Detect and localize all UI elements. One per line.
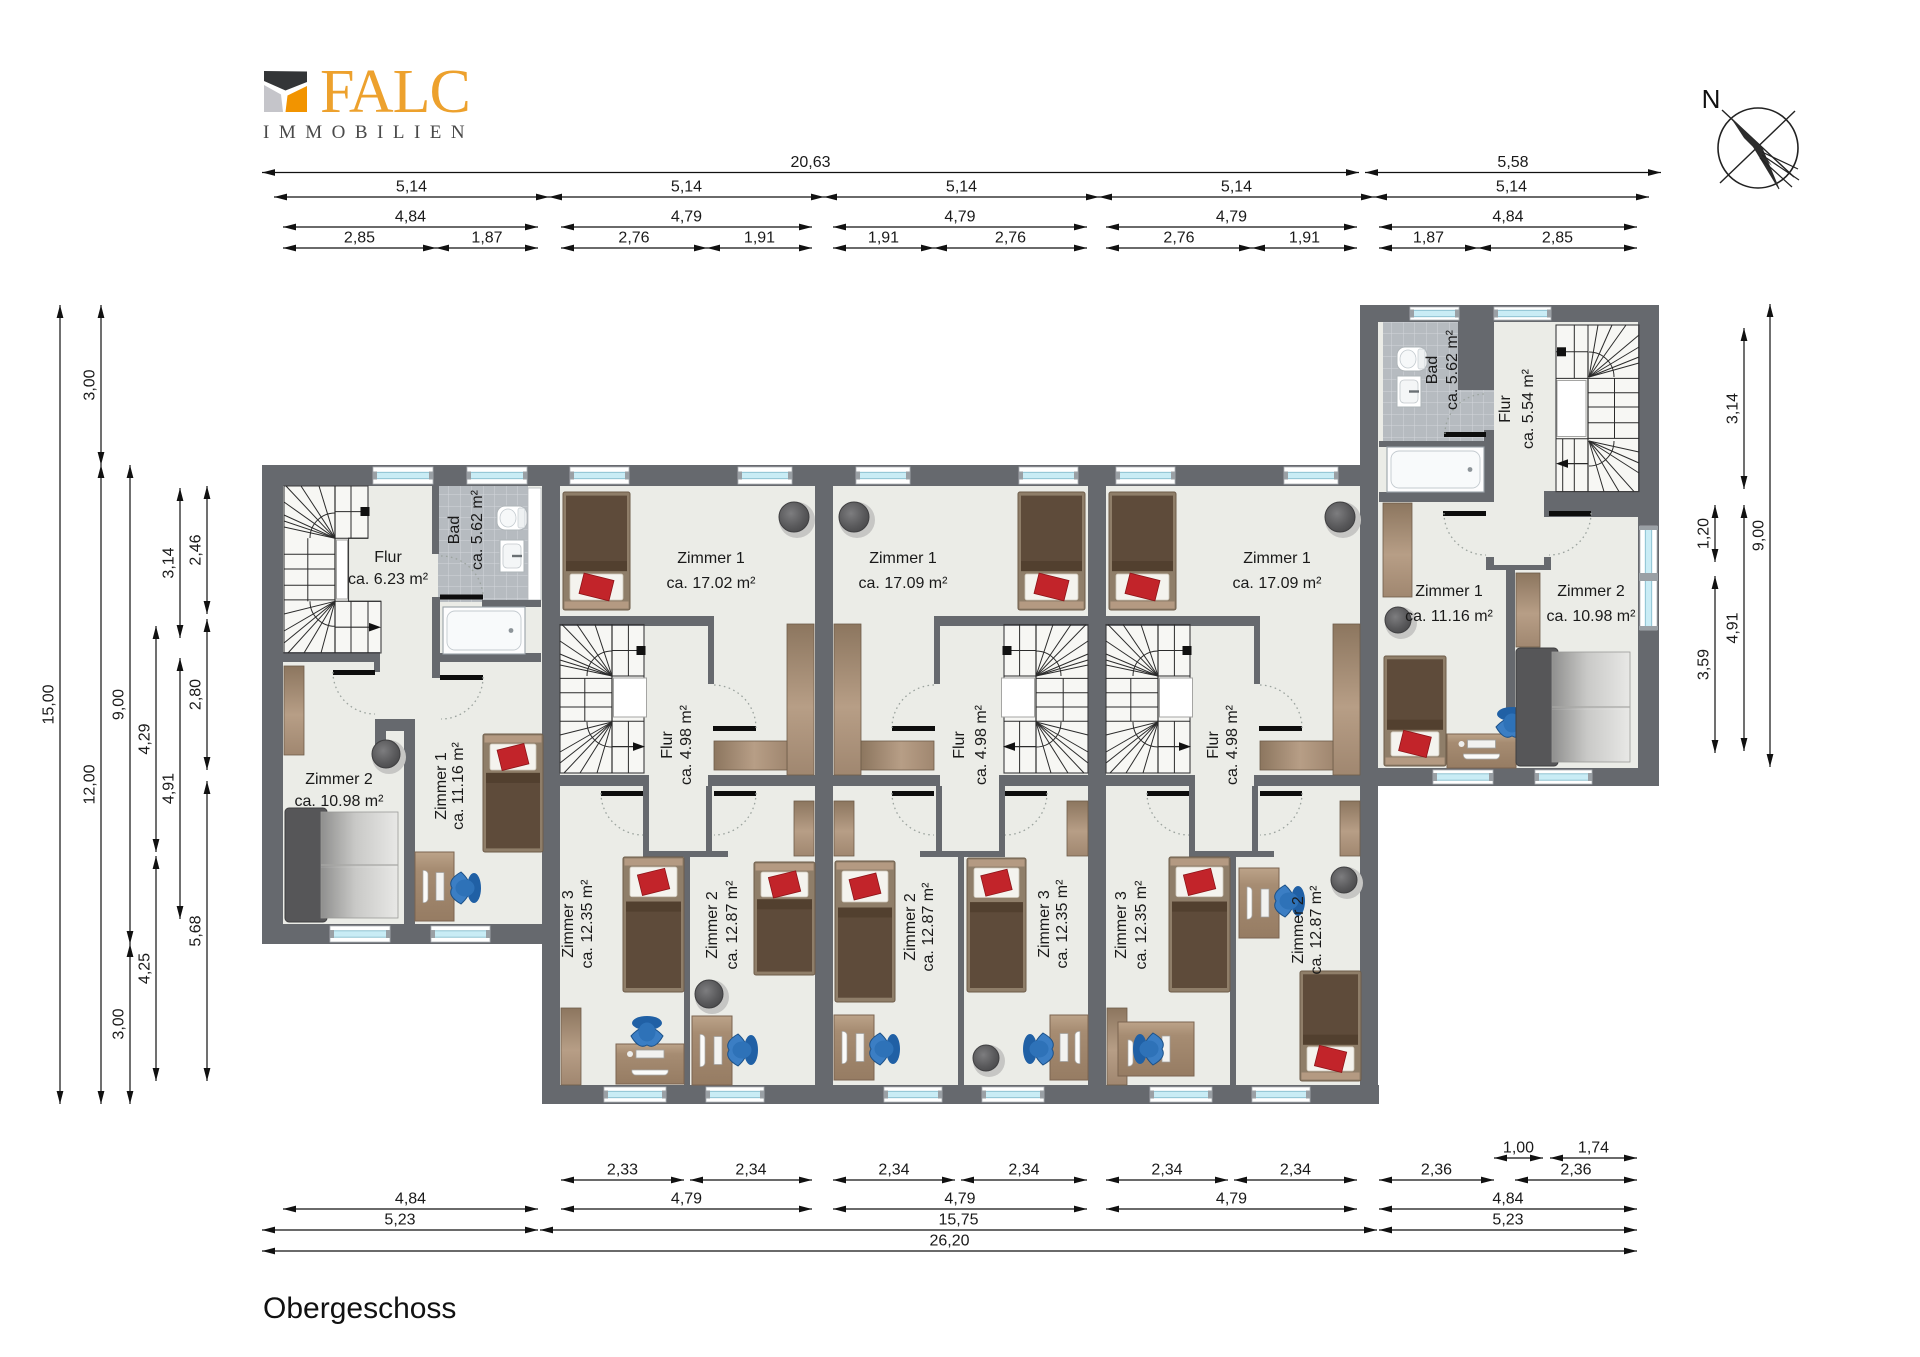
svg-text:ca. 12.87 m²: ca. 12.87 m² <box>920 882 937 972</box>
svg-text:2,34: 2,34 <box>1280 1162 1311 1179</box>
svg-text:2,36: 2,36 <box>1560 1162 1591 1179</box>
svg-text:5,14: 5,14 <box>946 179 977 196</box>
svg-text:2,33: 2,33 <box>607 1162 638 1179</box>
svg-text:Flur: Flur <box>374 549 402 566</box>
svg-text:ca. 12.87 m²: ca. 12.87 m² <box>1308 885 1325 975</box>
svg-text:2,34: 2,34 <box>1151 1162 1182 1179</box>
svg-text:4,84: 4,84 <box>1492 1191 1523 1208</box>
svg-text:Flur: Flur <box>951 731 968 759</box>
svg-text:5,14: 5,14 <box>1496 179 1527 196</box>
svg-text:5,14: 5,14 <box>1221 179 1252 196</box>
svg-text:20,63: 20,63 <box>790 154 830 171</box>
svg-text:2,34: 2,34 <box>878 1162 909 1179</box>
svg-text:5,14: 5,14 <box>671 179 702 196</box>
svg-text:4,91: 4,91 <box>1725 612 1742 643</box>
svg-text:Zimmer 2: Zimmer 2 <box>704 891 721 959</box>
svg-text:4,79: 4,79 <box>944 1191 975 1208</box>
svg-text:ca. 5.54 m²: ca. 5.54 m² <box>1520 368 1537 449</box>
svg-text:4,84: 4,84 <box>395 209 426 226</box>
svg-text:26,20: 26,20 <box>929 1233 969 1250</box>
svg-text:2,34: 2,34 <box>1008 1162 1039 1179</box>
svg-text:3,14: 3,14 <box>161 547 178 578</box>
svg-text:Zimmer 2: Zimmer 2 <box>305 771 373 788</box>
svg-text:ca. 12.35 m²: ca. 12.35 m² <box>1054 879 1071 969</box>
svg-text:Flur: Flur <box>1205 731 1222 759</box>
svg-text:Zimmer 2: Zimmer 2 <box>1557 583 1625 600</box>
svg-text:ca. 11.16 m²: ca. 11.16 m² <box>1405 608 1493 625</box>
svg-text:4,25: 4,25 <box>137 953 154 984</box>
svg-text:15,75: 15,75 <box>938 1212 978 1229</box>
svg-text:ca. 12.87 m²: ca. 12.87 m² <box>724 880 741 970</box>
svg-text:1,87: 1,87 <box>1413 230 1444 247</box>
svg-text:Zimmer 3: Zimmer 3 <box>1113 891 1130 959</box>
svg-text:4,79: 4,79 <box>671 209 702 226</box>
svg-text:ca. 4.98 m²: ca. 4.98 m² <box>678 704 695 785</box>
svg-text:1,87: 1,87 <box>471 230 502 247</box>
svg-text:Zimmer 1: Zimmer 1 <box>1415 583 1483 600</box>
svg-text:ca. 10.98 m²: ca. 10.98 m² <box>295 793 385 810</box>
svg-text:1,91: 1,91 <box>744 230 775 247</box>
svg-text:Zimmer 1: Zimmer 1 <box>1243 550 1311 567</box>
svg-text:4,91: 4,91 <box>161 773 178 804</box>
svg-text:4,84: 4,84 <box>1492 209 1523 226</box>
svg-text:Zimmer 2: Zimmer 2 <box>1290 896 1307 964</box>
svg-text:4,79: 4,79 <box>671 1191 702 1208</box>
svg-text:ca. 12.35 m²: ca. 12.35 m² <box>579 879 596 969</box>
svg-text:9,00: 9,00 <box>111 689 128 720</box>
svg-text:1,74: 1,74 <box>1578 1140 1609 1157</box>
svg-text:4,79: 4,79 <box>1216 1191 1247 1208</box>
svg-text:2,85: 2,85 <box>344 230 375 247</box>
svg-text:Flur: Flur <box>1497 395 1514 423</box>
svg-text:3,59: 3,59 <box>1696 649 1713 680</box>
svg-text:2,34: 2,34 <box>735 1162 766 1179</box>
svg-text:Bad: Bad <box>446 516 463 544</box>
svg-text:4,79: 4,79 <box>944 209 975 226</box>
svg-text:15,00: 15,00 <box>41 684 58 724</box>
svg-text:5,68: 5,68 <box>188 915 205 946</box>
svg-text:2,76: 2,76 <box>618 230 649 247</box>
svg-text:2,85: 2,85 <box>1542 230 1573 247</box>
svg-text:5,23: 5,23 <box>384 1212 415 1229</box>
svg-text:Obergeschoss: Obergeschoss <box>263 1292 456 1325</box>
svg-text:12,00: 12,00 <box>82 764 99 804</box>
svg-text:5,14: 5,14 <box>396 179 427 196</box>
svg-text:4,84: 4,84 <box>395 1191 426 1208</box>
svg-text:IMMOBILIEN: IMMOBILIEN <box>263 122 474 143</box>
svg-text:4,29: 4,29 <box>137 723 154 754</box>
svg-text:1,20: 1,20 <box>1696 518 1713 549</box>
svg-text:2,36: 2,36 <box>1421 1162 1452 1179</box>
svg-text:Zimmer 1: Zimmer 1 <box>677 550 745 567</box>
svg-text:Zimmer 1: Zimmer 1 <box>433 752 450 820</box>
svg-text:3,00: 3,00 <box>82 369 99 400</box>
svg-text:ca. 5.62 m²: ca. 5.62 m² <box>469 489 486 570</box>
svg-text:2,76: 2,76 <box>995 230 1026 247</box>
svg-text:Zimmer 3: Zimmer 3 <box>560 890 577 958</box>
svg-text:ca. 11.16 m²: ca. 11.16 m² <box>450 741 467 829</box>
svg-text:ca. 17.09 m²: ca. 17.09 m² <box>1233 575 1323 592</box>
svg-text:ca. 6.23 m²: ca. 6.23 m² <box>348 571 429 588</box>
svg-text:ca. 12.35 m²: ca. 12.35 m² <box>1133 880 1150 970</box>
svg-text:2,46: 2,46 <box>188 534 205 565</box>
svg-text:5,23: 5,23 <box>1492 1212 1523 1229</box>
svg-text:9,00: 9,00 <box>1751 520 1768 551</box>
svg-text:ca. 4.98 m²: ca. 4.98 m² <box>973 704 990 785</box>
svg-text:2,80: 2,80 <box>188 679 205 710</box>
svg-text:ca. 17.09 m²: ca. 17.09 m² <box>859 575 949 592</box>
svg-text:ca. 10.98 m²: ca. 10.98 m² <box>1547 608 1637 625</box>
svg-text:ca. 5.62 m²: ca. 5.62 m² <box>1444 329 1461 410</box>
svg-text:1,00: 1,00 <box>1503 1140 1534 1157</box>
svg-text:ca. 4.98 m²: ca. 4.98 m² <box>1224 704 1241 785</box>
svg-text:ca. 17.02 m²: ca. 17.02 m² <box>667 575 757 592</box>
svg-text:3,14: 3,14 <box>1725 393 1742 424</box>
svg-text:1,91: 1,91 <box>868 230 899 247</box>
svg-text:Zimmer 2: Zimmer 2 <box>902 893 919 961</box>
svg-text:4,79: 4,79 <box>1216 209 1247 226</box>
svg-text:2,76: 2,76 <box>1163 230 1194 247</box>
svg-text:N: N <box>1702 84 1721 114</box>
svg-text:3,00: 3,00 <box>111 1008 128 1039</box>
svg-text:1,91: 1,91 <box>1289 230 1320 247</box>
svg-text:Zimmer 1: Zimmer 1 <box>869 550 937 567</box>
svg-text:Flur: Flur <box>659 731 676 759</box>
svg-text:Zimmer 3: Zimmer 3 <box>1036 890 1053 958</box>
svg-text:Bad: Bad <box>1424 356 1441 384</box>
svg-text:5,58: 5,58 <box>1497 154 1528 171</box>
svg-text:FALC: FALC <box>320 58 470 126</box>
